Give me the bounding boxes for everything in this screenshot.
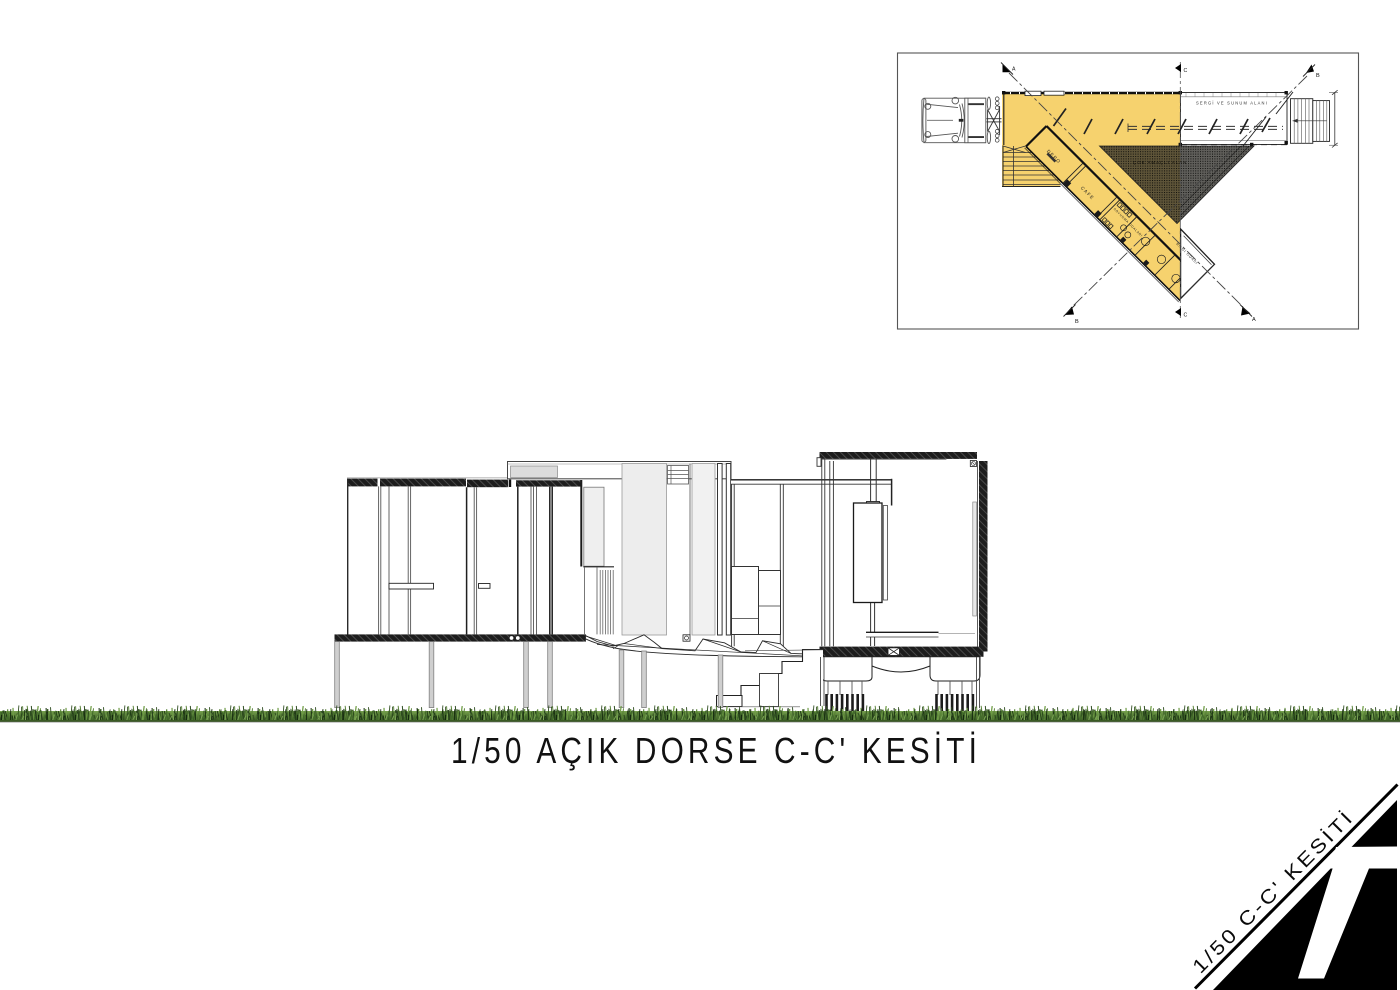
svg-text:B: B bbox=[1075, 319, 1079, 325]
svg-text:A: A bbox=[1252, 317, 1256, 323]
svg-text:ÇOK AMAÇLI ALAN: ÇOK AMAÇLI ALAN bbox=[1133, 160, 1187, 165]
svg-text:C: C bbox=[1184, 313, 1188, 319]
svg-text:A: A bbox=[1012, 67, 1016, 73]
svg-text:1/50 AÇIK DORSE C-C' KESİTİ: 1/50 AÇIK DORSE C-C' KESİTİ bbox=[451, 730, 981, 771]
svg-text:C: C bbox=[1184, 68, 1188, 74]
svg-text:SERGİ VE SUNUM ALANI: SERGİ VE SUNUM ALANI bbox=[1196, 101, 1268, 106]
svg-text:B: B bbox=[1316, 73, 1320, 79]
